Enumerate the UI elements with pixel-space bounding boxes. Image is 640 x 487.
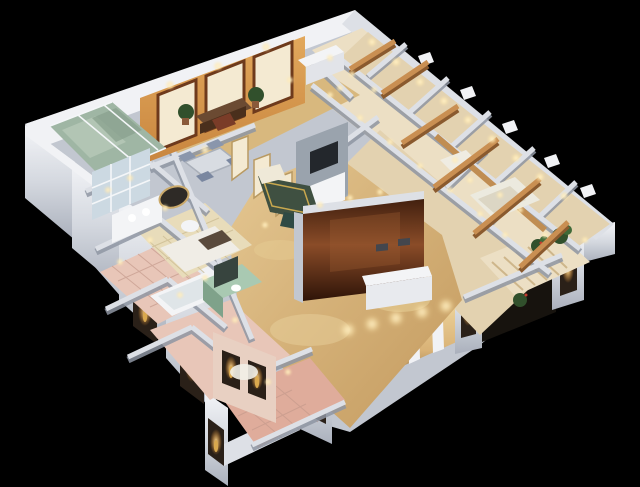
render-viewport bbox=[0, 0, 640, 487]
toilet bbox=[181, 220, 199, 232]
console-slot bbox=[376, 243, 388, 251]
potted-plant bbox=[248, 87, 264, 103]
living-room bbox=[294, 191, 432, 310]
console-slot bbox=[398, 238, 410, 246]
floorplan-render bbox=[0, 0, 640, 487]
white-seat bbox=[230, 364, 258, 380]
sink bbox=[231, 285, 241, 292]
potted-plant bbox=[178, 104, 194, 120]
